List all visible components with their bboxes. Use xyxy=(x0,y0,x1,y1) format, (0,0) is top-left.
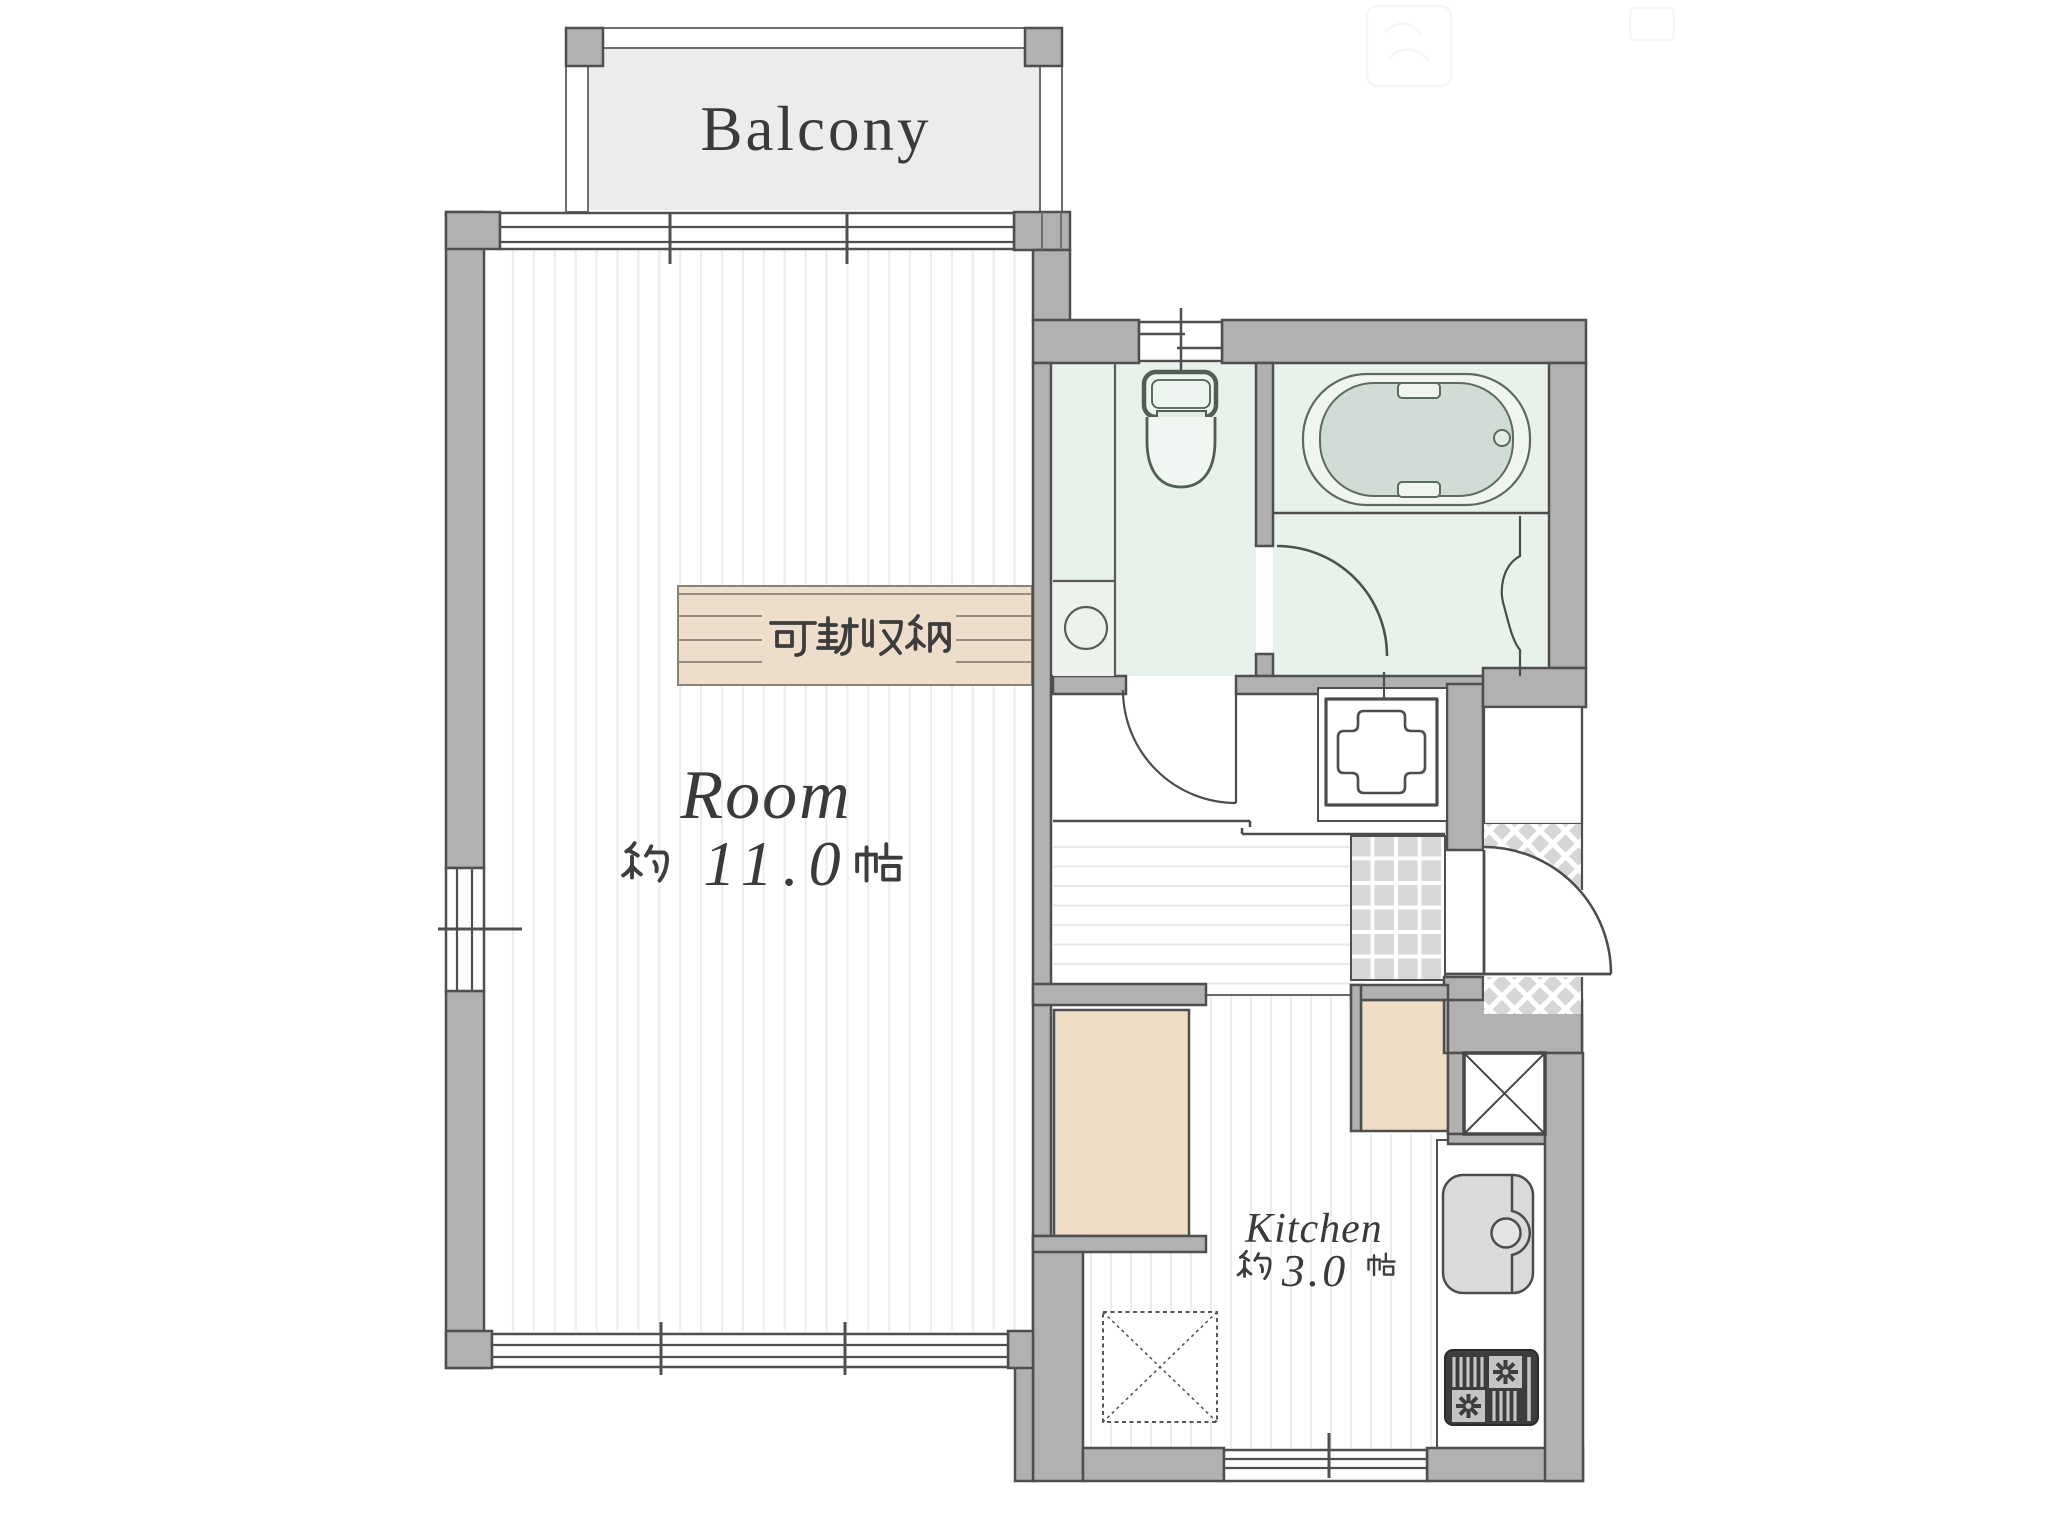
svg-text:Balcony: Balcony xyxy=(701,94,932,164)
svg-text:11.0: 11.0 xyxy=(703,828,850,899)
svg-text:3.0: 3.0 xyxy=(1281,1245,1349,1296)
svg-text:Room: Room xyxy=(679,757,851,834)
